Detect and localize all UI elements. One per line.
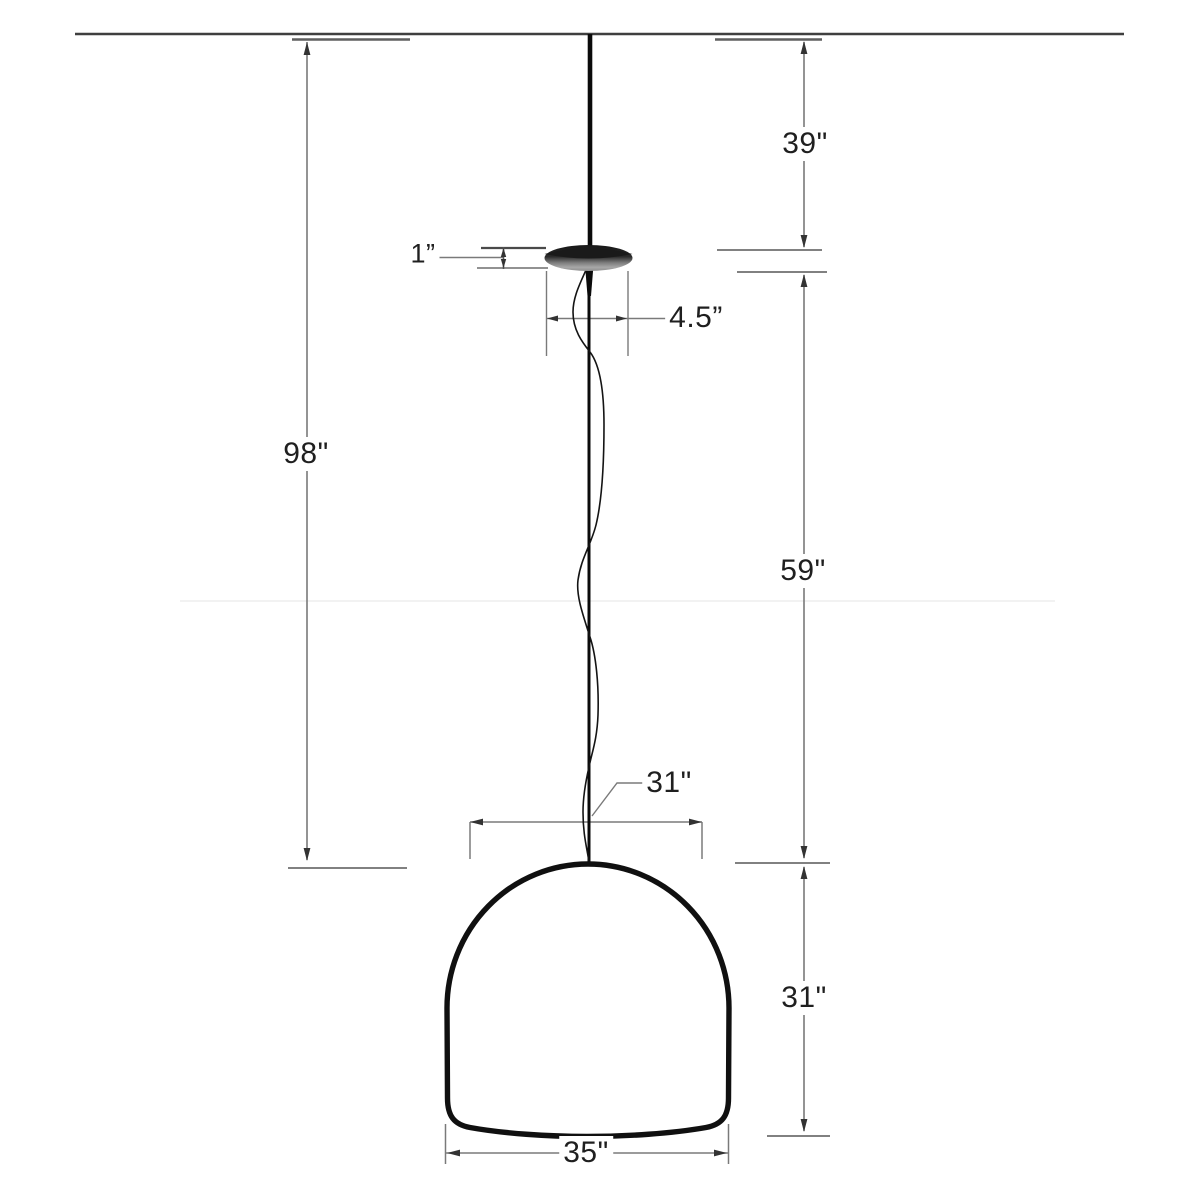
dimension-label-shade-bottom-width: 35": [559, 1136, 613, 1170]
suspension-cord: [585, 34, 595, 863]
dimension-label-upper-cord: 39": [778, 127, 832, 161]
dimension-canopy-height: [436, 247, 548, 269]
dimension-label-shade-top-width: 31": [642, 766, 696, 800]
shade: [447, 864, 729, 1137]
pendant-dimension-diagram: 98" 39" 1” 4.5” 59" 31" 31" 35": [0, 0, 1200, 1200]
dimension-canopy-diameter: [546, 271, 671, 356]
diagram-canvas: [0, 0, 1200, 1200]
dimension-label-canopy-diameter: 4.5”: [665, 301, 727, 335]
dimension-label-shade-height: 31": [777, 981, 831, 1015]
canopy: [545, 245, 633, 271]
dimension-label-overall-drop: 98": [279, 437, 333, 471]
dimension-label-canopy-height: 1”: [406, 239, 439, 270]
dimension-label-lower-cord: 59": [776, 554, 830, 588]
